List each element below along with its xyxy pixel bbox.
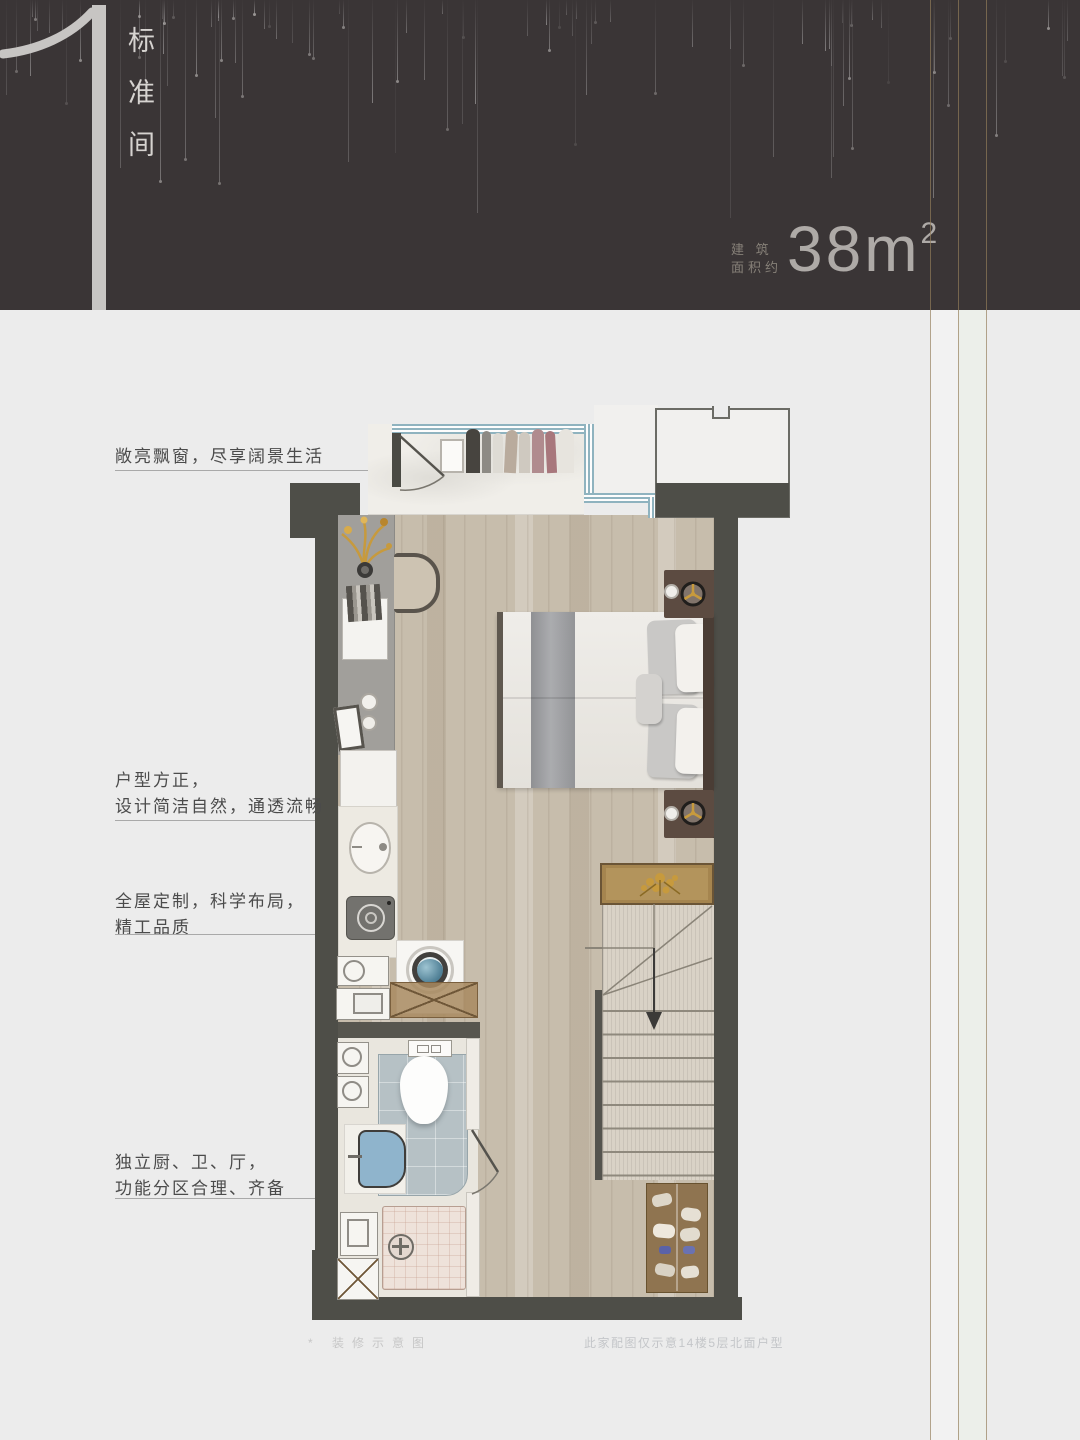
wall-right — [714, 517, 738, 1320]
annotation-text: 独立厨、卫、厅， — [115, 1150, 286, 1176]
balcony-notch — [712, 406, 730, 419]
washer-glass — [417, 957, 443, 983]
annotation-underline — [115, 820, 315, 821]
desk-item-blue — [659, 1246, 671, 1254]
burner-center — [365, 912, 377, 924]
cutting-board — [340, 750, 397, 807]
annotation-text: 全屋定制，科学布局， — [115, 889, 305, 915]
bathroom-door-swing — [464, 1126, 508, 1198]
bath-faucet — [348, 1155, 362, 1158]
annotation-zones: 独立厨、卫、厅， 功能分区合理、齐备 — [115, 1150, 286, 1202]
chair — [394, 553, 440, 613]
window-frame-step — [584, 493, 658, 503]
bed-runner-blanket — [531, 612, 575, 788]
corridor-line — [585, 947, 603, 949]
annotation-bay-window: 敞亮飘窗，尽享阔景生活 — [115, 444, 324, 470]
book — [493, 433, 503, 473]
poster: 标准间 建 筑 面积约 38m2 敞亮飘窗，尽享阔景生活 户型方正， 设计简洁自… — [0, 0, 1080, 1440]
books-on-sill — [440, 427, 586, 473]
exterior-patch — [594, 405, 658, 493]
bath-fixture — [337, 1076, 369, 1108]
annotation-underline — [115, 934, 315, 935]
stair-steps — [602, 1010, 714, 1180]
cabinet-inner — [353, 993, 383, 1014]
toilet-tank — [408, 1040, 452, 1057]
cabinet-inner — [347, 1219, 369, 1247]
plant-icon — [334, 510, 396, 580]
bath-wall-upper — [466, 1038, 480, 1130]
desk-item — [680, 1265, 699, 1279]
wall-balcony-band — [656, 483, 789, 517]
cup — [360, 693, 378, 711]
fixture-circle — [343, 960, 365, 982]
magazine-rack — [342, 598, 388, 660]
book — [558, 429, 574, 473]
gold-line-1 — [930, 0, 931, 1440]
footnote-right: 此家配图仅示意14楼5层北面户型 — [584, 1334, 784, 1351]
flush-button — [431, 1045, 441, 1053]
desk-item — [651, 1192, 673, 1208]
desk-item — [652, 1223, 675, 1239]
book — [466, 429, 480, 473]
annotation-text: 敞亮飘窗，尽享阔景生活 — [115, 444, 324, 470]
book — [545, 431, 557, 473]
annotation-text: 设计简洁自然，通透流畅 — [115, 794, 324, 820]
storage-desk — [646, 1183, 708, 1293]
book — [519, 432, 530, 473]
gold-flowers-icon — [620, 866, 700, 904]
desk-item-blue — [683, 1246, 695, 1254]
faucet-handle — [352, 846, 362, 848]
shower-cabinet — [340, 1212, 378, 1256]
desk-item — [680, 1207, 702, 1223]
laundry-fixture — [337, 956, 389, 986]
drain-cross — [392, 1245, 409, 1248]
desk-item — [654, 1262, 676, 1277]
fixture-circle — [342, 1081, 362, 1101]
fixture-circle — [342, 1047, 362, 1067]
floor-plan — [0, 0, 1080, 1440]
annotation-underline — [115, 1198, 315, 1199]
mug-icon — [664, 584, 679, 599]
stair-winders — [602, 903, 714, 1015]
throw-cushion — [636, 674, 662, 724]
wall-left — [315, 515, 338, 1320]
bath-sink-basin — [358, 1130, 406, 1188]
annotation-underline — [115, 470, 368, 471]
wall-bottom — [312, 1297, 742, 1320]
entry-door-swing — [396, 430, 456, 494]
cabinet-unit — [336, 988, 390, 1020]
annotation-custom: 全屋定制，科学布局， 精工品质 — [115, 889, 305, 941]
desk-item — [679, 1227, 700, 1242]
bed-foot-frame — [497, 612, 503, 788]
floor-drain — [388, 1234, 414, 1260]
book — [532, 429, 544, 473]
annotation-text: 精工品质 — [115, 915, 305, 941]
flush-button — [417, 1045, 429, 1053]
direction-arrow-line — [653, 948, 655, 1014]
annotation-text: 户型方正， — [115, 768, 324, 794]
lamp-icon — [678, 798, 708, 828]
bath-fixture — [337, 1042, 369, 1074]
book — [504, 430, 518, 474]
magazine — [346, 584, 382, 622]
cup — [361, 715, 377, 731]
stair-stub-wall — [595, 990, 602, 1180]
bed-center-seam — [503, 697, 708, 699]
bath-wall-lower — [466, 1192, 480, 1297]
shaft-box — [337, 1258, 379, 1300]
lamp-icon — [678, 579, 708, 609]
stove-knob — [387, 901, 391, 905]
gas-stove — [346, 896, 395, 940]
console-table — [600, 863, 714, 905]
gold-line-2 — [958, 0, 959, 1440]
mug-icon — [664, 806, 679, 821]
fold-table — [390, 982, 478, 1018]
annotation-layout: 户型方正， 设计简洁自然，通透流畅 — [115, 768, 324, 820]
wall-bath-top — [338, 1022, 480, 1038]
book — [482, 431, 491, 473]
faucet-icon — [379, 843, 387, 851]
direction-arrow-head — [646, 1012, 662, 1030]
gold-line-3 — [986, 0, 987, 1440]
desk-divider — [676, 1184, 678, 1291]
footnote-left: * 装修示意图 — [308, 1334, 432, 1351]
